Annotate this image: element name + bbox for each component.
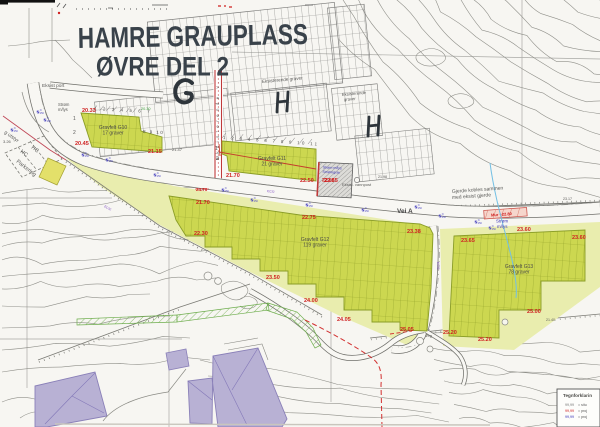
svg-text:25.05: 25.05 (400, 327, 414, 333)
svg-text:1: 1 (215, 146, 218, 152)
svg-text:= proj: = proj (578, 409, 587, 413)
svg-text:21.40: 21.40 (546, 318, 555, 322)
svg-text:ØVRE DEL 2: ØVRE DEL 2 (96, 52, 229, 82)
svg-text:150: 150 (418, 207, 423, 210)
svg-text:22.50: 22.50 (300, 178, 314, 184)
svg-text:150: 150 (365, 210, 370, 213)
svg-text:23.60: 23.60 (517, 227, 531, 233)
svg-text:150: 150 (309, 205, 314, 208)
svg-text:m/lys: m/lys (58, 107, 68, 112)
svg-text:23.60: 23.60 (572, 235, 586, 241)
svg-text:150: 150 (225, 190, 230, 193)
svg-text:150: 150 (254, 200, 259, 203)
svg-text:21.70: 21.70 (226, 173, 240, 179)
svg-text:23.50: 23.50 (266, 275, 280, 281)
svg-text:21.15: 21.15 (148, 149, 162, 155)
svg-text:150: 150 (85, 155, 90, 158)
svg-text:24.00: 24.00 (304, 298, 318, 304)
svg-text:150: 150 (157, 175, 162, 178)
svg-text:25.00: 25.00 (527, 309, 541, 315)
svg-text:150: 150 (442, 216, 447, 219)
svg-text:17 graver: 17 graver (102, 131, 123, 137)
svg-text:150: 150 (478, 222, 483, 225)
svg-text:150: 150 (492, 228, 497, 231)
svg-text:25.20: 25.20 (443, 330, 457, 336)
svg-text:3.26: 3.26 (3, 139, 12, 144)
svg-text:150: 150 (109, 160, 114, 163)
svg-text:2: 2 (73, 130, 76, 136)
svg-text:150: 150 (47, 120, 52, 123)
svg-text:21 graver: 21 graver (261, 162, 282, 168)
svg-text:= proj: = proj (578, 415, 587, 419)
svg-text:78 graver: 78 graver (508, 270, 529, 276)
svg-text:23.38: 23.38 (407, 229, 421, 235)
svg-text:20.30: 20.30 (141, 107, 151, 111)
svg-text:Vei A: Vei A (397, 208, 413, 215)
svg-text:1: 1 (73, 116, 76, 122)
svg-text:2: 2 (216, 156, 219, 162)
svg-text:HAMRE GRAUPLASS: HAMRE GRAUPLASS (78, 19, 309, 55)
svg-text:21.98: 21.98 (378, 175, 387, 179)
svg-text:Eksist port: Eksist port (42, 83, 65, 89)
svg-text:150: 150 (40, 112, 45, 115)
svg-text:= situ: = situ (578, 403, 587, 407)
svg-text:119 graver: 119 graver (303, 243, 327, 249)
svg-text:25.20: 25.20 (478, 337, 492, 343)
svg-text:99,99: 99,99 (565, 409, 574, 413)
svg-text:Strøm: Strøm (496, 219, 508, 224)
svg-text:22.75: 22.75 (302, 215, 316, 221)
svg-text:150: 150 (14, 130, 19, 133)
svg-text:m/lys: m/lys (497, 224, 508, 229)
svg-text:20.45: 20.45 (75, 141, 89, 147)
svg-text:22.30: 22.30 (194, 231, 208, 237)
svg-text:Tegnforklarin: Tegnforklarin (563, 393, 592, 398)
svg-text:EC32: EC32 (267, 189, 275, 194)
svg-text:22.85: 22.85 (324, 178, 338, 184)
svg-text:99,99: 99,99 (565, 415, 574, 419)
svg-text:23.65: 23.65 (461, 238, 475, 244)
svg-text:EC32: EC32 (436, 262, 440, 270)
svg-text:Veg: Veg (425, 333, 432, 338)
svg-text:21.47: 21.47 (172, 147, 183, 152)
svg-text:24.05: 24.05 (337, 317, 351, 323)
svg-text:21.70: 21.70 (196, 200, 210, 206)
svg-text:20.33: 20.33 (82, 108, 96, 114)
svg-text:24.76: 24.76 (196, 187, 208, 192)
svg-text:23.17: 23.17 (563, 197, 572, 201)
svg-text:99,99: 99,99 (565, 403, 574, 407)
